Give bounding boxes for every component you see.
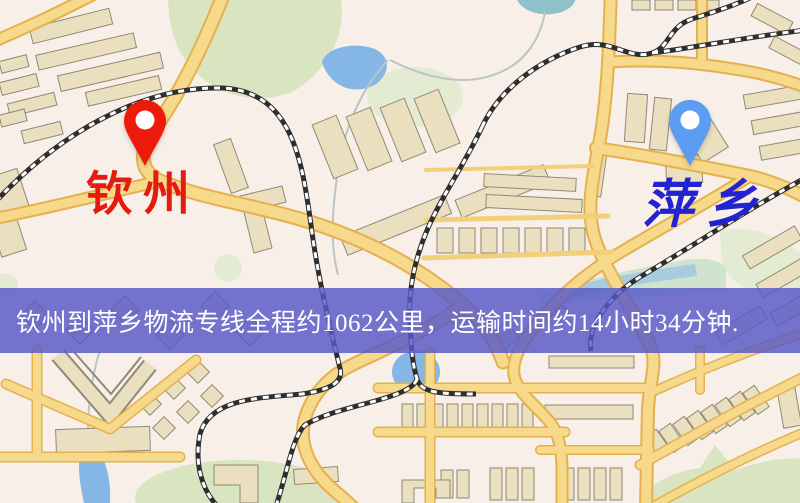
destination-pin-icon [669,100,711,166]
route-map-image: 钦州 萍乡 钦州到萍乡物流专线全程约1062公里，运输时间约14小时34分钟. [0,0,800,503]
map-canvas [0,0,800,503]
origin-pin-hole [136,111,155,130]
destination-pin[interactable] [664,97,716,171]
destination-city-label: 萍乡 [642,180,770,232]
origin-pin-icon [124,100,166,166]
origin-city-label: 钦州 [86,172,200,219]
route-info-banner: 钦州到萍乡物流专线全程约1062公里，运输时间约14小时34分钟. [0,288,800,353]
route-info-text: 钦州到萍乡物流专线全程约1062公里，运输时间约14小时34分钟. [0,303,739,339]
destination-pin-hole [681,111,700,130]
origin-pin[interactable] [119,97,171,171]
